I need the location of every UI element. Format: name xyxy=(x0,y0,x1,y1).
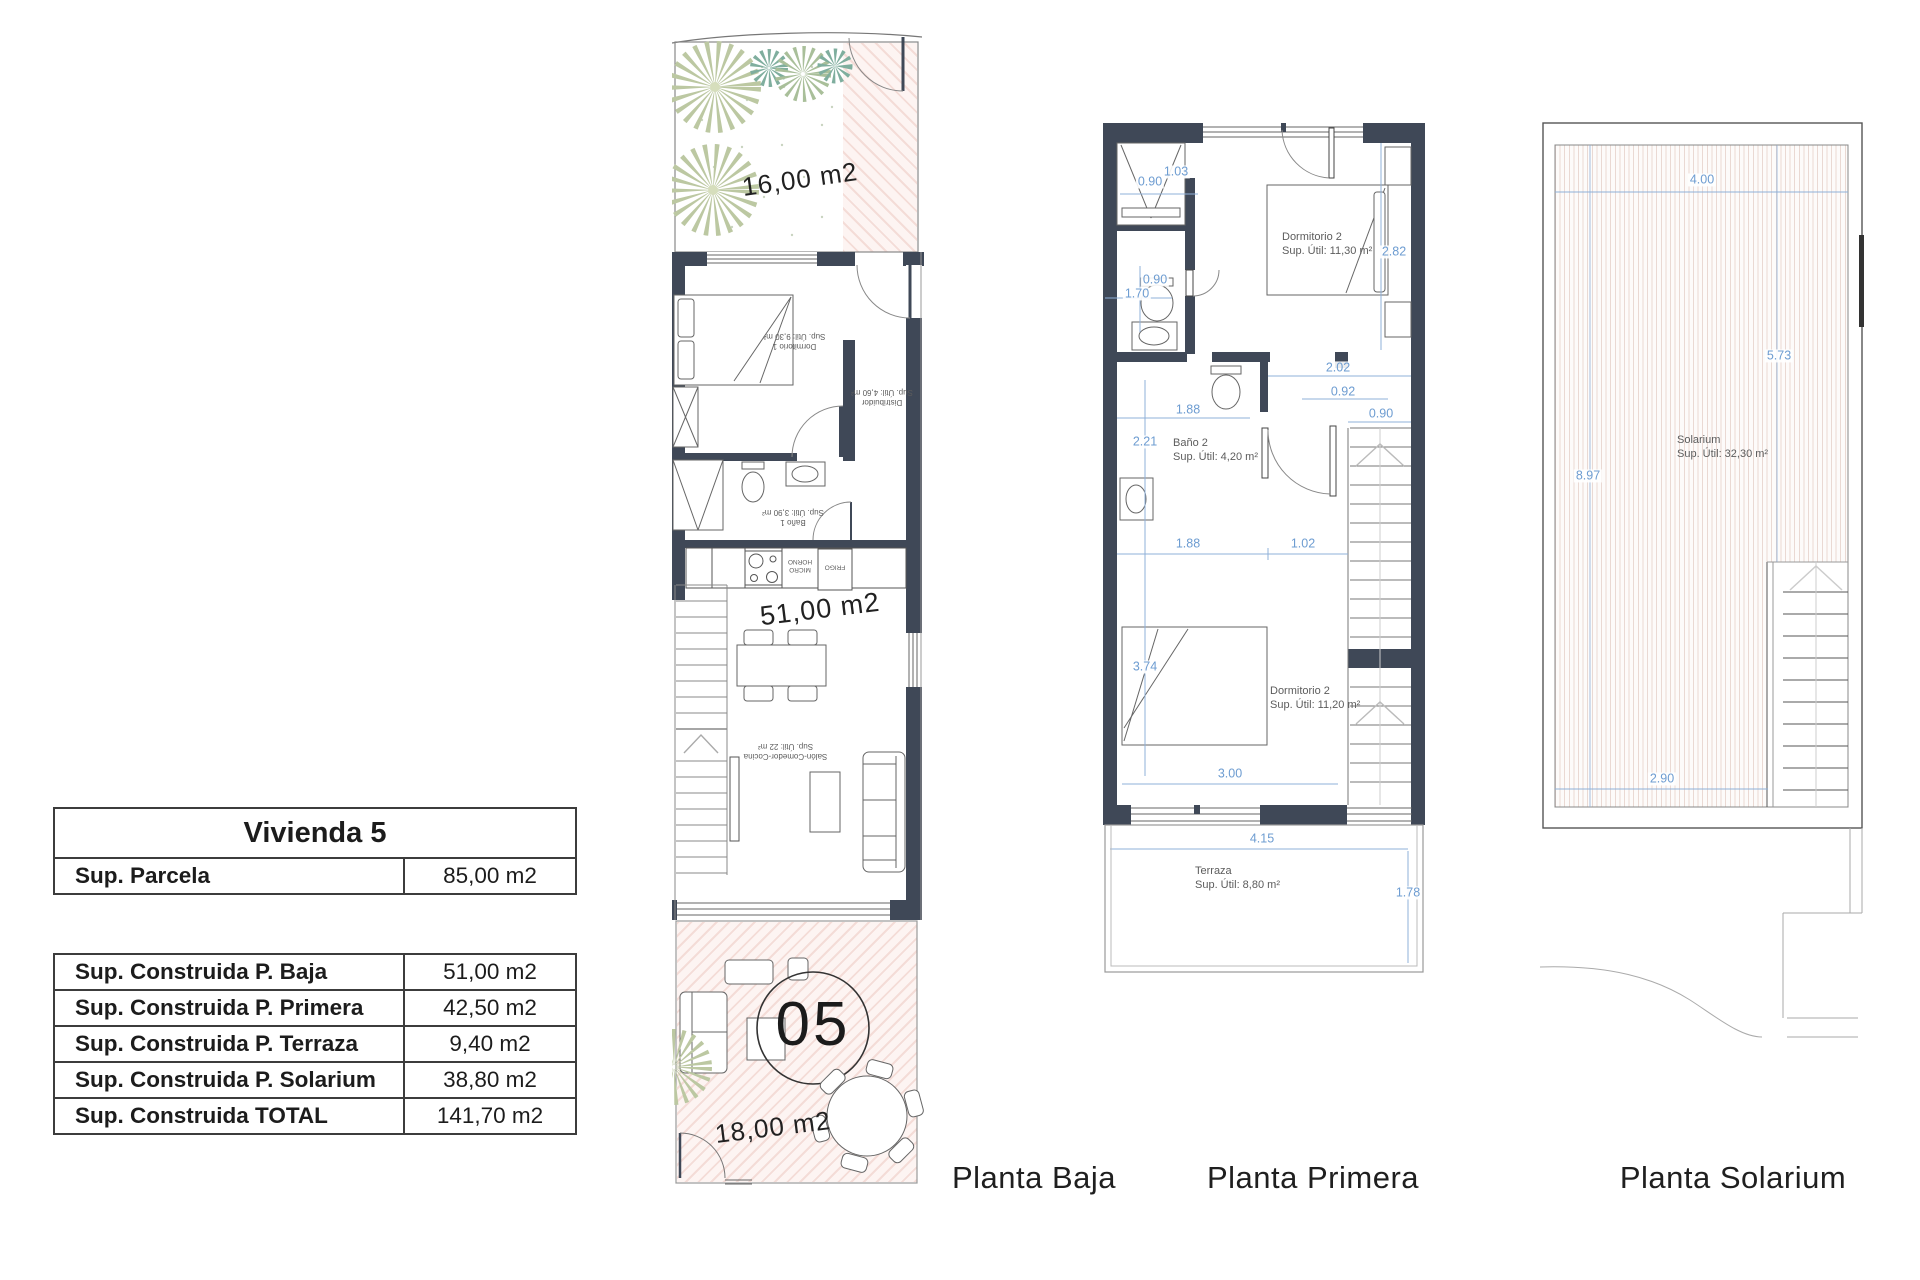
room-label-dormitorio1: Dormitorio 1 Sup. Útil: 9,30 m² xyxy=(742,330,847,351)
room-area: Sup. Útil: 11,20 m² xyxy=(1270,698,1360,712)
room-label-bano1: Baño 1 Sup. Útil: 3,90 m² xyxy=(757,506,829,527)
row-label: Sup. Construida P. Solarium xyxy=(55,1063,405,1097)
wall-segment xyxy=(1859,235,1864,327)
dim-label: 0.92 xyxy=(1329,385,1357,398)
window-top xyxy=(707,252,817,266)
room-name: Terraza xyxy=(1195,864,1280,878)
garden-door-arc xyxy=(849,37,903,91)
dim-label: 1.88 xyxy=(1174,403,1202,416)
label-line: HORNO xyxy=(784,556,816,564)
row-label: Sup. Construida P. Baja xyxy=(55,955,405,989)
parcela-value: 85,00 m2 xyxy=(405,859,575,893)
room-label-solarium: Solarium Sup. Útil: 32,30 m² xyxy=(1677,433,1768,462)
stairs xyxy=(1348,428,1411,805)
room-area: Sup. Útil: 32,30 m² xyxy=(1677,447,1768,461)
sink2-icon xyxy=(1120,478,1153,520)
coffee-table-icon xyxy=(810,772,840,832)
dim-label: 2.90 xyxy=(1648,772,1676,785)
closet-icons xyxy=(1385,147,1411,337)
plan-planta-baja: 16,00 m2 51,00 m2 18,00 m2 05 Dormitorio… xyxy=(672,25,924,1190)
room-area: Sup. Útil: 11,30 m² xyxy=(1282,244,1372,258)
table-row: Sup. Construida P. Baja 51,00 m2 xyxy=(55,955,575,989)
table-row: Sup. Parcela 85,00 m2 xyxy=(55,857,575,893)
dim-label: 1.02 xyxy=(1289,537,1317,550)
table-row: Sup. Construida P. Solarium 38,80 m2 xyxy=(55,1061,575,1097)
room-label-salon: Salón-Comedor-Cocina Sup. Útil: 22 m² xyxy=(728,740,843,761)
dining-table-icon xyxy=(737,630,826,701)
room-area: Sup. Útil: 4,60 m² xyxy=(846,386,918,396)
room-area: Sup. Útil: 3,90 m² xyxy=(757,506,829,516)
parcela-label: Sup. Parcela xyxy=(55,859,405,893)
room-name: Dormitorio 1 xyxy=(742,340,847,350)
sink-icon xyxy=(786,462,825,486)
room-name: Salón-Comedor-Cocina xyxy=(728,750,843,760)
room-name: Baño 2 xyxy=(1173,436,1258,450)
room-area: Sup. Útil: 9,30 m² xyxy=(742,330,847,340)
room-label-dormitorio2-bottom: Dormitorio 2 Sup. Útil: 11,20 m² xyxy=(1270,684,1360,713)
room-area: Sup. Útil: 22 m² xyxy=(728,740,843,750)
label-line: MICRO xyxy=(784,564,816,572)
plan-planta-primera: Dormitorio 2 Sup. Útil: 11,30 m² Baño 2 … xyxy=(1100,118,1430,978)
dim-label: 0.90 xyxy=(1141,273,1169,286)
room-name: Dormitorio 2 xyxy=(1282,230,1372,244)
dim-label: 2.21 xyxy=(1131,435,1159,448)
floorplan-sheet: Vivienda 5 Sup. Parcela 85,00 m2 Sup. Co… xyxy=(0,0,1920,1280)
row-value: 51,00 m2 xyxy=(405,955,575,989)
dim-label: 2.82 xyxy=(1380,245,1408,258)
row-label: Sup. Construida P. Primera xyxy=(55,991,405,1025)
dim-label: 1.88 xyxy=(1174,537,1202,550)
plan-planta-solarium: Solarium Sup. Útil: 32,30 m² 4.00 5.73 8… xyxy=(1540,120,1870,1050)
table-row: Sup. Construida P. Terraza 9,40 m2 xyxy=(55,1025,575,1061)
room-label-dormitorio2-top: Dormitorio 2 Sup. Útil: 11,30 m² xyxy=(1282,230,1372,259)
sofa-icon xyxy=(863,752,905,872)
caption-planta-baja: Planta Baja xyxy=(914,1160,1154,1196)
caption-planta-solarium: Planta Solarium xyxy=(1613,1160,1853,1196)
room-name: Solarium xyxy=(1677,433,1768,447)
room-label-bano2: Baño 2 Sup. Útil: 4,20 m² xyxy=(1173,436,1258,465)
dim-label: 1.78 xyxy=(1394,886,1422,899)
planta-solarium-drawing xyxy=(1540,120,1870,1050)
terrace-outline xyxy=(1105,825,1423,972)
entrance-outline xyxy=(1540,828,1862,1037)
window-top xyxy=(1203,123,1363,137)
room-label-terraza: Terraza Sup. Útil: 8,80 m² xyxy=(1195,864,1280,893)
dim-label: 1.70 xyxy=(1123,287,1151,300)
room-area: Sup. Útil: 8,80 m² xyxy=(1195,878,1280,892)
dim-label: 0.90 xyxy=(1136,175,1164,188)
terrace-palm-icon xyxy=(672,1047,694,1087)
vivienda-table: Vivienda 5 Sup. Parcela 85,00 m2 xyxy=(53,807,577,895)
room-name: Dormitorio 2 xyxy=(1270,684,1360,698)
row-value: 9,40 m2 xyxy=(405,1027,575,1061)
row-value: 38,80 m2 xyxy=(405,1063,575,1097)
row-value: 141,70 m2 xyxy=(405,1099,575,1133)
sink-icon xyxy=(1132,322,1177,350)
unit-number: 05 xyxy=(761,994,865,1056)
stairs xyxy=(1767,562,1848,807)
toilet2-icon xyxy=(1211,366,1241,409)
room-name: Distribuidor xyxy=(846,396,918,406)
superficies-table: Sup. Construida P. Baja 51,00 m2 Sup. Co… xyxy=(53,953,577,1135)
dim-label: 3.00 xyxy=(1216,767,1244,780)
vivienda-title: Vivienda 5 xyxy=(55,809,575,857)
dim-label: 3.74 xyxy=(1131,660,1159,673)
row-label: Sup. Construida P. Terraza xyxy=(55,1027,405,1061)
toilet-icon xyxy=(742,462,764,502)
dim-label: 0.90 xyxy=(1367,407,1395,420)
dim-label: 1.03 xyxy=(1162,165,1190,178)
window-bottom xyxy=(677,903,890,915)
table-row: Sup. Construida P. Primera 42,50 m2 xyxy=(55,989,575,1025)
room-label-distribuidor: Distribuidor Sup. Útil: 4,60 m² xyxy=(846,386,918,407)
bed-bottom-icon xyxy=(1122,627,1267,745)
dim-label: 8.97 xyxy=(1574,469,1602,482)
wardrobe-icon xyxy=(673,387,698,447)
room-area: Sup. Útil: 4,20 m² xyxy=(1173,450,1258,464)
dim-label: 5.73 xyxy=(1765,349,1793,362)
caption-planta-primera: Planta Primera xyxy=(1193,1160,1433,1196)
kitchen-frigo-label: FRIGO xyxy=(819,562,851,570)
kitchen-micro-label: MICRO HORNO xyxy=(784,556,816,573)
entry-door-arc xyxy=(857,265,922,318)
dim-label: 4.00 xyxy=(1688,173,1716,186)
row-label: Sup. Construida TOTAL xyxy=(55,1099,405,1133)
bedroom-door-arc xyxy=(792,406,844,457)
dim-label: 4.15 xyxy=(1248,832,1276,845)
shower-icon xyxy=(673,460,723,530)
window-right xyxy=(906,633,922,687)
room-name: Baño 1 xyxy=(757,516,829,526)
row-value: 42,50 m2 xyxy=(405,991,575,1025)
dim-label: 2.02 xyxy=(1324,361,1352,374)
table-row: Sup. Construida TOTAL 141,70 m2 xyxy=(55,1097,575,1133)
